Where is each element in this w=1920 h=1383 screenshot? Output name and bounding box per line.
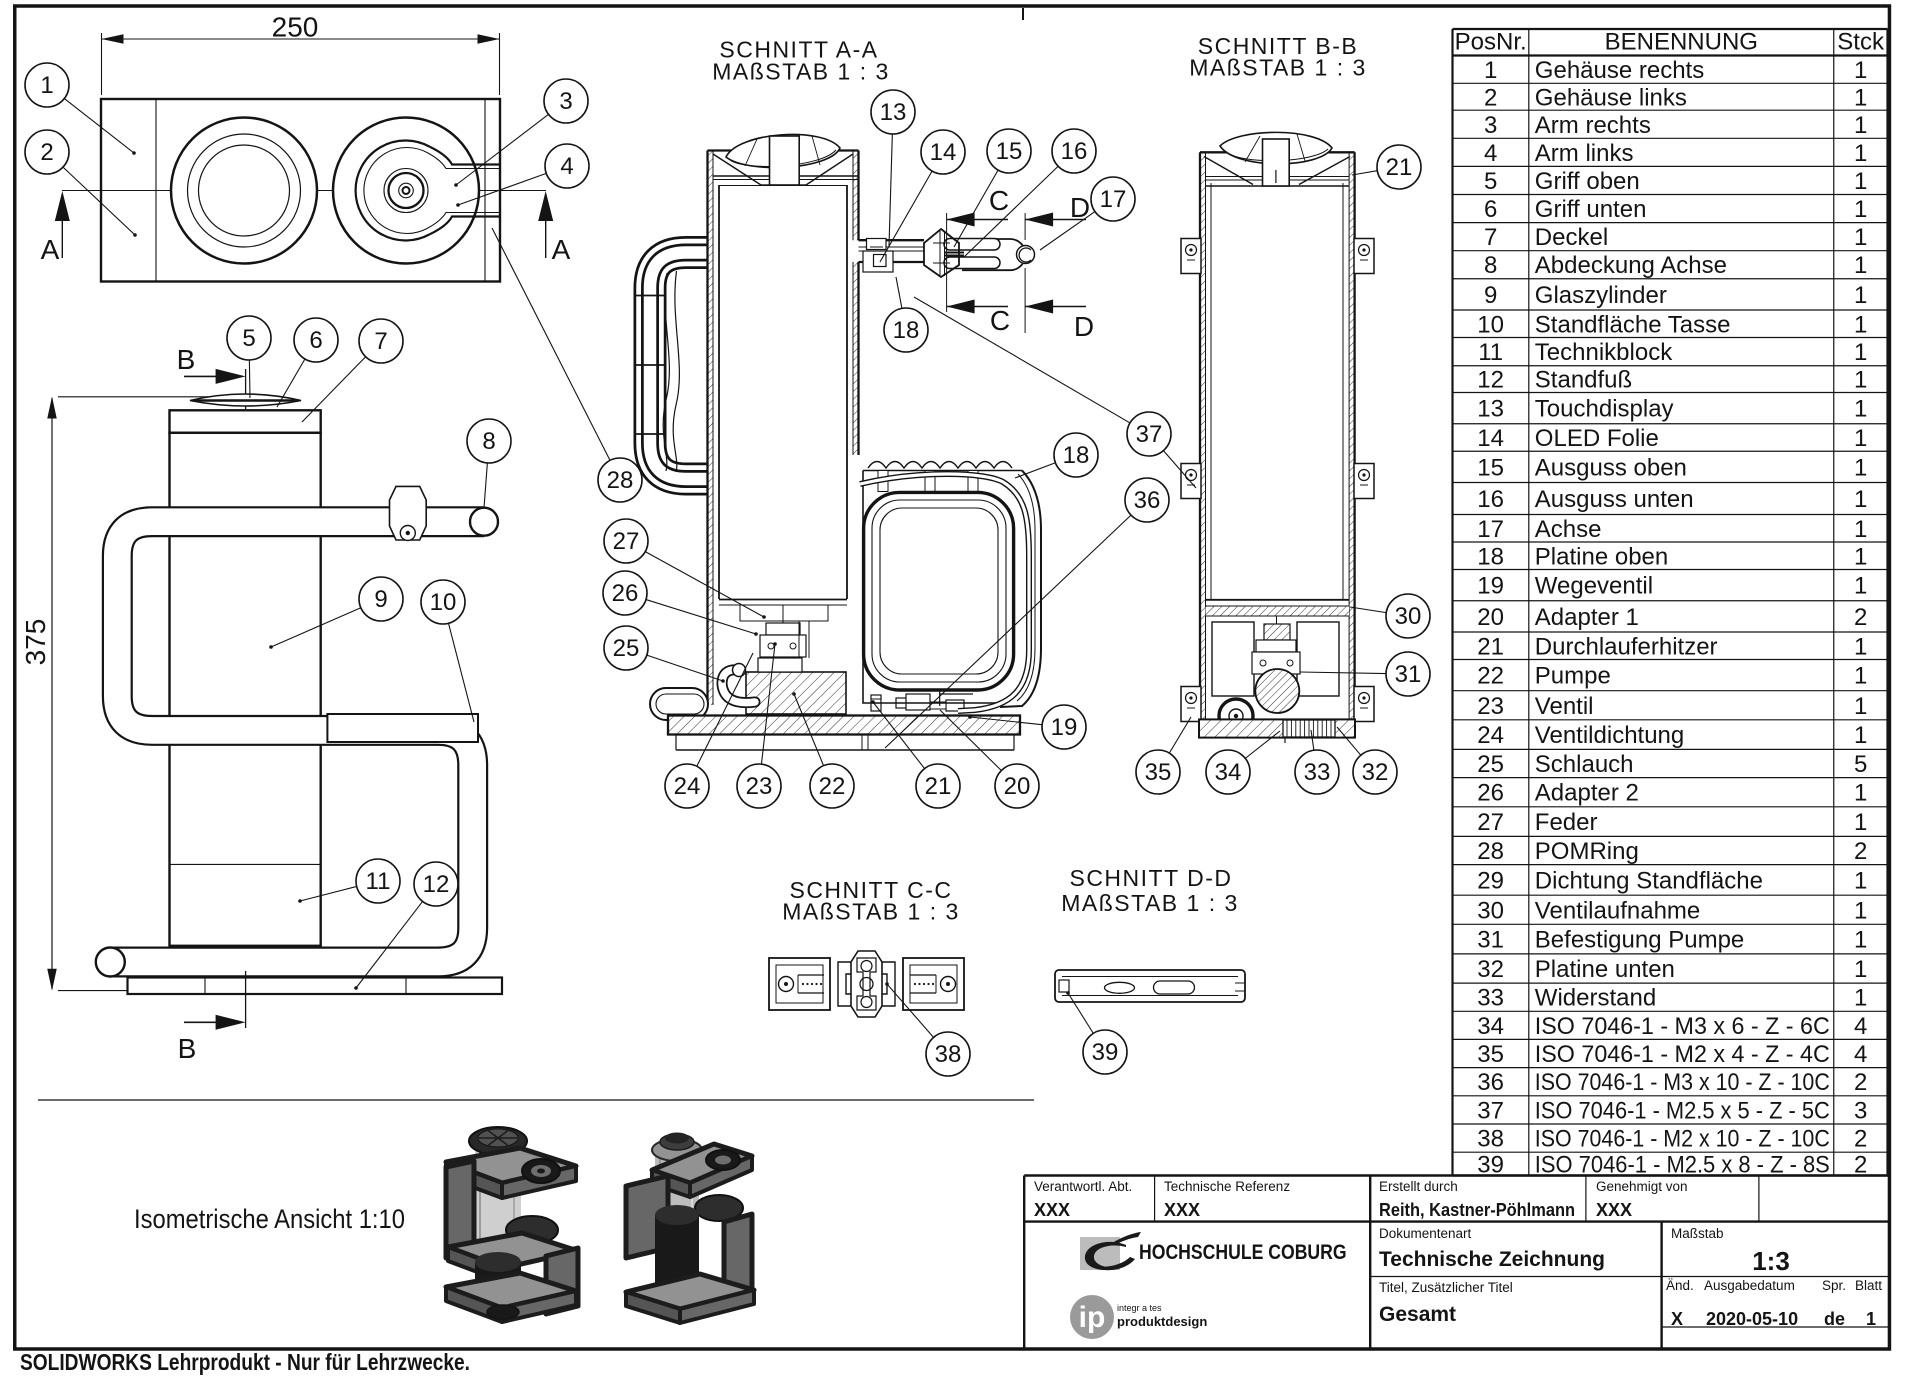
- svg-text:30: 30: [1477, 897, 1504, 924]
- svg-text:5: 5: [242, 325, 255, 352]
- svg-text:1: 1: [1854, 396, 1867, 423]
- svg-text:10: 10: [1477, 311, 1504, 338]
- svg-text:1: 1: [1854, 897, 1867, 924]
- svg-text:4: 4: [1854, 1041, 1867, 1068]
- svg-text:37: 37: [1477, 1097, 1504, 1124]
- svg-text:Platine unten: Platine unten: [1535, 956, 1675, 983]
- svg-text:21: 21: [925, 773, 952, 800]
- svg-text:C: C: [990, 305, 1010, 336]
- svg-text:1: 1: [1854, 985, 1867, 1012]
- svg-text:34: 34: [1215, 759, 1242, 786]
- svg-text:39: 39: [1092, 1039, 1119, 1066]
- svg-text:de: de: [1824, 1309, 1845, 1329]
- svg-text:Ausguss oben: Ausguss oben: [1535, 454, 1687, 481]
- svg-text:ISO 7046-1 - M3 x 10 - Z - 10C: ISO 7046-1 - M3 x 10 - Z - 10C: [1535, 1069, 1830, 1096]
- svg-text:1: 1: [1854, 168, 1867, 195]
- svg-text:9: 9: [1484, 282, 1497, 309]
- svg-text:PosNr.: PosNr.: [1455, 29, 1527, 56]
- svg-text:1: 1: [1854, 573, 1867, 600]
- svg-text:X: X: [1671, 1309, 1683, 1329]
- svg-text:18: 18: [1063, 442, 1090, 469]
- svg-text:1: 1: [1854, 867, 1867, 894]
- svg-text:ISO 7046-1 - M2.5 x 5 - Z - 5C: ISO 7046-1 - M2.5 x 5 - Z - 5C: [1535, 1097, 1830, 1124]
- svg-text:11: 11: [366, 868, 391, 895]
- svg-text:D: D: [1074, 311, 1094, 342]
- svg-text:ip: ip: [1079, 1301, 1106, 1334]
- svg-text:POMRing: POMRing: [1535, 838, 1639, 865]
- svg-text:7: 7: [374, 328, 387, 355]
- svg-text:31: 31: [1395, 661, 1422, 688]
- svg-text:1: 1: [1854, 633, 1867, 660]
- svg-text:Ventil: Ventil: [1535, 693, 1594, 720]
- svg-text:1: 1: [1484, 57, 1497, 84]
- svg-text:4: 4: [560, 153, 573, 180]
- svg-text:13: 13: [880, 99, 907, 126]
- svg-text:33: 33: [1304, 759, 1331, 786]
- svg-text:23: 23: [1477, 693, 1504, 720]
- svg-text:19: 19: [1051, 714, 1078, 741]
- svg-text:Pumpe: Pumpe: [1535, 663, 1611, 690]
- svg-text:2: 2: [1854, 1151, 1867, 1178]
- svg-text:MAßSTAB 1 : 3: MAßSTAB 1 : 3: [712, 59, 890, 85]
- svg-text:1: 1: [1854, 543, 1867, 570]
- svg-text:Verantwortl. Abt.: Verantwortl. Abt.: [1034, 1179, 1132, 1194]
- svg-text:12: 12: [423, 871, 450, 898]
- svg-text:Platine oben: Platine oben: [1535, 543, 1668, 570]
- svg-text:Blatt: Blatt: [1855, 1278, 1882, 1293]
- svg-text:1: 1: [1854, 454, 1867, 481]
- svg-text:8: 8: [482, 428, 495, 455]
- svg-text:Standfläche Tasse: Standfläche Tasse: [1535, 311, 1731, 338]
- svg-text:26: 26: [612, 580, 639, 607]
- svg-text:OLED Folie: OLED Folie: [1535, 425, 1659, 452]
- svg-text:4: 4: [1854, 1013, 1867, 1040]
- svg-text:32: 32: [1362, 759, 1389, 786]
- svg-text:3: 3: [1854, 1097, 1867, 1124]
- svg-text:Griff oben: Griff oben: [1535, 168, 1640, 195]
- svg-text:1:3: 1:3: [1752, 1246, 1790, 1276]
- svg-text:1: 1: [1854, 282, 1867, 309]
- svg-text:Ausguss unten: Ausguss unten: [1535, 486, 1694, 513]
- svg-text:Achse: Achse: [1535, 516, 1602, 543]
- svg-text:35: 35: [1145, 759, 1172, 786]
- svg-text:19: 19: [1477, 573, 1504, 600]
- svg-text:38: 38: [935, 1041, 962, 1068]
- svg-text:16: 16: [1477, 486, 1504, 513]
- svg-text:MAßSTAB 1 : 3: MAßSTAB 1 : 3: [1061, 890, 1239, 916]
- svg-text:2: 2: [40, 139, 53, 166]
- svg-text:produktdesign: produktdesign: [1117, 1314, 1207, 1329]
- svg-text:SOLIDWORKS Lehrprodukt - Nur f: SOLIDWORKS Lehrprodukt - Nur für Lehrzwe…: [20, 1349, 470, 1375]
- svg-text:D: D: [1070, 192, 1090, 223]
- svg-text:Adapter 1: Adapter 1: [1535, 604, 1639, 631]
- svg-text:Spr.: Spr.: [1822, 1278, 1846, 1293]
- svg-text:10: 10: [430, 589, 457, 616]
- svg-text:15: 15: [1477, 454, 1504, 481]
- svg-text:Deckel: Deckel: [1535, 224, 1608, 251]
- svg-text:ISO 7046-1 - M2.5 x 8 - Z - 8S: ISO 7046-1 - M2.5 x 8 - Z - 8S: [1535, 1151, 1830, 1178]
- svg-text:21: 21: [1477, 633, 1504, 660]
- svg-text:37: 37: [1136, 421, 1163, 448]
- svg-text:Widerstand: Widerstand: [1535, 985, 1656, 1012]
- svg-text:Touchdisplay: Touchdisplay: [1535, 396, 1674, 423]
- svg-text:1: 1: [1854, 57, 1867, 84]
- svg-text:250: 250: [272, 12, 319, 43]
- svg-text:Wegeventil: Wegeventil: [1535, 573, 1653, 600]
- svg-text:1: 1: [1854, 927, 1867, 954]
- svg-text:Glaszylinder: Glaszylinder: [1535, 282, 1667, 309]
- svg-text:38: 38: [1477, 1126, 1504, 1153]
- svg-text:2: 2: [1484, 84, 1497, 111]
- svg-text:17: 17: [1100, 186, 1127, 213]
- svg-text:8: 8: [1484, 252, 1497, 279]
- svg-text:28: 28: [607, 467, 634, 494]
- svg-text:ISO 7046-1 - M2 x 10 - Z - 10C: ISO 7046-1 - M2 x 10 - Z - 10C: [1535, 1126, 1830, 1153]
- svg-text:1: 1: [1854, 486, 1867, 513]
- svg-text:1: 1: [1854, 339, 1867, 366]
- svg-text:35: 35: [1477, 1041, 1504, 1068]
- svg-text:36: 36: [1477, 1069, 1504, 1096]
- svg-text:Adapter 2: Adapter 2: [1535, 780, 1639, 807]
- svg-text:Technikblock: Technikblock: [1535, 339, 1673, 366]
- svg-text:2020-05-10: 2020-05-10: [1706, 1309, 1798, 1329]
- svg-text:24: 24: [674, 773, 701, 800]
- svg-text:2: 2: [1854, 1126, 1867, 1153]
- svg-text:MAßSTAB 1 : 3: MAßSTAB 1 : 3: [1189, 55, 1367, 81]
- svg-text:Abdeckung Achse: Abdeckung Achse: [1535, 252, 1727, 279]
- svg-text:3: 3: [1484, 112, 1497, 139]
- svg-text:1: 1: [1854, 84, 1867, 111]
- svg-text:Ventildichtung: Ventildichtung: [1535, 722, 1684, 749]
- svg-text:14: 14: [930, 139, 957, 166]
- svg-text:14: 14: [1477, 425, 1504, 452]
- svg-text:1: 1: [1854, 196, 1867, 223]
- svg-text:34: 34: [1477, 1013, 1504, 1040]
- svg-text:C: C: [989, 185, 1009, 216]
- svg-text:24: 24: [1477, 722, 1504, 749]
- svg-text:A: A: [41, 234, 60, 265]
- svg-text:1: 1: [1854, 956, 1867, 983]
- svg-text:5: 5: [1854, 751, 1867, 778]
- svg-text:4: 4: [1484, 140, 1497, 167]
- svg-text:Stck: Stck: [1837, 29, 1885, 56]
- svg-text:MAßSTAB 1 : 3: MAßSTAB 1 : 3: [782, 899, 960, 925]
- svg-text:27: 27: [613, 528, 640, 555]
- svg-text:Genehmigt von: Genehmigt von: [1596, 1179, 1688, 1194]
- svg-text:12: 12: [1477, 367, 1504, 394]
- svg-text:BENENNUNG: BENENNUNG: [1605, 29, 1758, 56]
- svg-text:1: 1: [1854, 663, 1867, 690]
- svg-text:1: 1: [1854, 140, 1867, 167]
- svg-text:23: 23: [746, 773, 773, 800]
- svg-text:20: 20: [1004, 773, 1031, 800]
- svg-text:Gehäuse rechts: Gehäuse rechts: [1535, 57, 1704, 84]
- svg-text:1: 1: [1854, 425, 1867, 452]
- svg-text:Gehäuse links: Gehäuse links: [1535, 84, 1687, 111]
- svg-text:Dokumentenart: Dokumentenart: [1379, 1226, 1472, 1241]
- svg-text:1: 1: [40, 72, 53, 99]
- svg-text:13: 13: [1477, 396, 1504, 423]
- svg-text:Technische Referenz: Technische Referenz: [1164, 1179, 1290, 1194]
- svg-text:5: 5: [1484, 168, 1497, 195]
- svg-text:Feder: Feder: [1535, 809, 1598, 836]
- svg-text:6: 6: [1484, 196, 1497, 223]
- svg-text:XXX: XXX: [1596, 1200, 1632, 1220]
- svg-text:SCHNITT D-D: SCHNITT D-D: [1069, 865, 1232, 891]
- svg-text:Schlauch: Schlauch: [1535, 751, 1634, 778]
- svg-text:Standfuß: Standfuß: [1535, 367, 1632, 394]
- svg-text:2: 2: [1854, 1069, 1867, 1096]
- svg-text:18: 18: [893, 317, 920, 344]
- svg-text:11: 11: [1478, 339, 1503, 366]
- svg-text:2: 2: [1854, 838, 1867, 865]
- svg-text:36: 36: [1134, 487, 1161, 514]
- svg-text:375: 375: [20, 619, 51, 666]
- svg-text:Dichtung Standfläche: Dichtung Standfläche: [1535, 867, 1763, 894]
- svg-text:6: 6: [309, 327, 322, 354]
- svg-text:22: 22: [819, 773, 846, 800]
- svg-text:27: 27: [1477, 809, 1504, 836]
- svg-text:1: 1: [1854, 780, 1867, 807]
- svg-text:7: 7: [1484, 224, 1497, 251]
- svg-text:Technische Zeichnung: Technische Zeichnung: [1379, 1248, 1605, 1271]
- svg-text:1: 1: [1854, 722, 1867, 749]
- svg-text:1: 1: [1854, 112, 1867, 139]
- svg-text:1: 1: [1854, 252, 1867, 279]
- svg-text:25: 25: [613, 635, 640, 662]
- svg-text:15: 15: [996, 138, 1023, 165]
- svg-text:25: 25: [1477, 751, 1504, 778]
- svg-text:1: 1: [1866, 1309, 1876, 1329]
- svg-text:1: 1: [1854, 693, 1867, 720]
- svg-text:26: 26: [1477, 780, 1504, 807]
- svg-text:XXX: XXX: [1164, 1200, 1200, 1220]
- svg-text:16: 16: [1061, 138, 1088, 165]
- svg-text:18: 18: [1477, 543, 1504, 570]
- svg-text:30: 30: [1395, 603, 1422, 630]
- svg-text:Reith, Kastner-Pöhlmann: Reith, Kastner-Pöhlmann: [1379, 1200, 1575, 1220]
- svg-text:Titel, Zusätzlicher Titel: Titel, Zusätzlicher Titel: [1379, 1280, 1513, 1295]
- svg-text:Ausgabedatum: Ausgabedatum: [1704, 1278, 1795, 1293]
- svg-text:20: 20: [1477, 604, 1504, 631]
- svg-text:32: 32: [1477, 956, 1504, 983]
- svg-text:1: 1: [1854, 224, 1867, 251]
- svg-text:1: 1: [1854, 311, 1867, 338]
- svg-text:B: B: [177, 344, 196, 375]
- svg-text:Durchlauferhitzer: Durchlauferhitzer: [1535, 633, 1718, 660]
- svg-text:Erstellt durch: Erstellt durch: [1379, 1179, 1458, 1194]
- svg-text:B: B: [178, 1033, 197, 1064]
- svg-text:28: 28: [1477, 838, 1504, 865]
- svg-text:17: 17: [1477, 516, 1504, 543]
- svg-text:9: 9: [374, 586, 387, 613]
- svg-text:33: 33: [1477, 985, 1504, 1012]
- svg-text:39: 39: [1477, 1151, 1504, 1178]
- svg-text:31: 31: [1477, 927, 1504, 954]
- svg-text:21: 21: [1386, 154, 1413, 181]
- svg-text:XXX: XXX: [1034, 1200, 1070, 1220]
- svg-text:2: 2: [1854, 604, 1867, 631]
- svg-text:ISO 7046-1 - M2 x 4 - Z - 4C: ISO 7046-1 - M2 x 4 - Z - 4C: [1535, 1041, 1830, 1068]
- svg-text:Gesamt: Gesamt: [1379, 1303, 1456, 1326]
- svg-text:1: 1: [1854, 367, 1867, 394]
- svg-text:22: 22: [1477, 663, 1504, 690]
- svg-text:Änd.: Änd.: [1666, 1278, 1694, 1293]
- svg-text:Befestigung Pumpe: Befestigung Pumpe: [1535, 927, 1744, 954]
- svg-text:Griff unten: Griff unten: [1535, 196, 1647, 223]
- svg-text:Arm rechts: Arm rechts: [1535, 112, 1651, 139]
- svg-text:1: 1: [1854, 809, 1867, 836]
- svg-text:1: 1: [1854, 516, 1867, 543]
- svg-text:Ventilaufnahme: Ventilaufnahme: [1535, 897, 1700, 924]
- svg-text:3: 3: [559, 88, 572, 115]
- svg-text:ISO 7046-1 - M3 x 6 - Z - 6C: ISO 7046-1 - M3 x 6 - Z - 6C: [1535, 1013, 1830, 1040]
- svg-text:HOCHSCHULE COBURG: HOCHSCHULE COBURG: [1139, 1240, 1347, 1264]
- svg-text:A: A: [552, 234, 571, 265]
- svg-text:Isometrische Ansicht 1:10: Isometrische Ansicht 1:10: [134, 1204, 405, 1234]
- svg-text:29: 29: [1477, 867, 1504, 894]
- svg-text:Arm links: Arm links: [1535, 140, 1634, 167]
- svg-text:Maßstab: Maßstab: [1671, 1226, 1724, 1241]
- svg-text:integr a tes: integr a tes: [1117, 1303, 1162, 1313]
